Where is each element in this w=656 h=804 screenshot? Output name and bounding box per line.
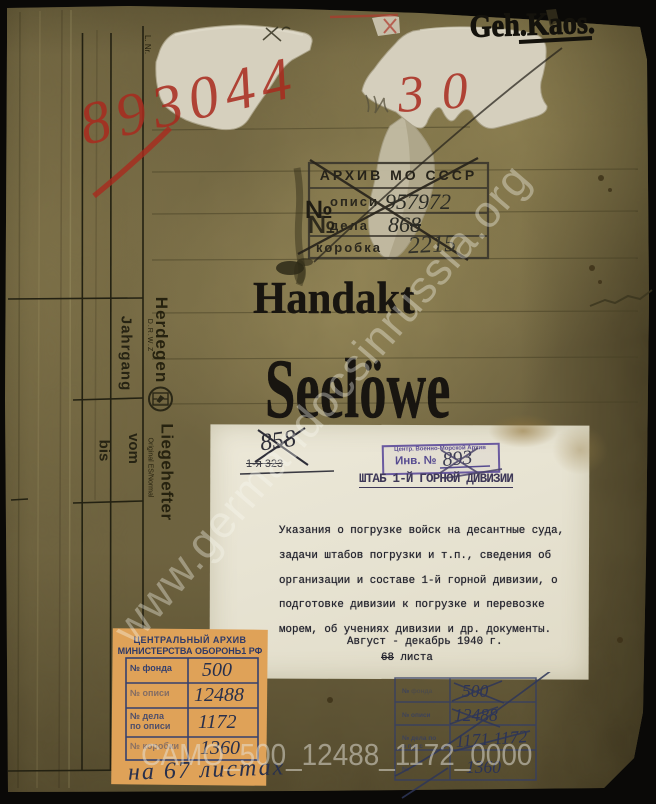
- svg-text:30: 30: [395, 61, 488, 124]
- svg-text:№ фонда: № фонда: [402, 688, 433, 695]
- svg-text:№ описи: № описи: [402, 712, 431, 719]
